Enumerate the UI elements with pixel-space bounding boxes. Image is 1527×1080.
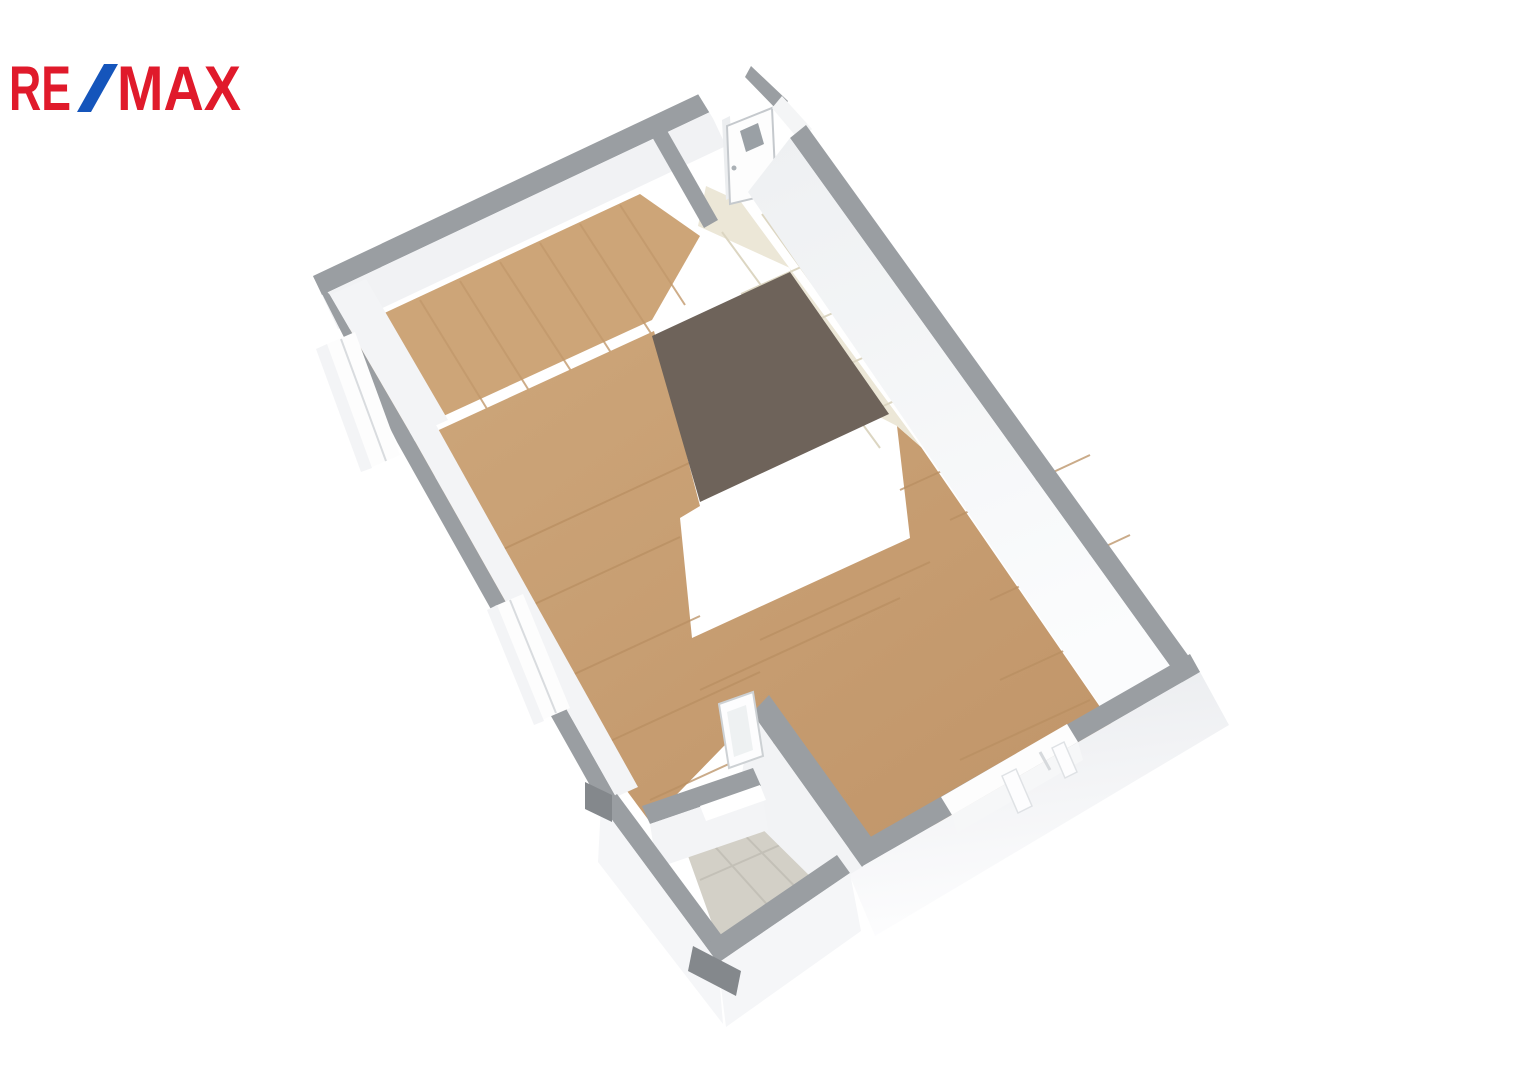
svg-text:MAX: MAX	[117, 54, 241, 124]
svg-text:RE: RE	[9, 54, 71, 124]
